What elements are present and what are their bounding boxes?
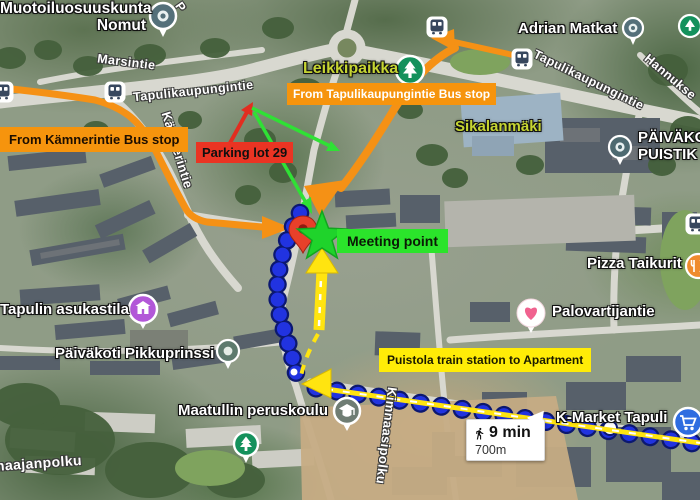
place-pin-icon [623,18,643,45]
label-adrian-matkat: Adrian Matkat [518,21,617,38]
walk-info-bubble: 9 min 700m [466,419,545,461]
label-palovartijantie: Palovartijantie [552,304,655,321]
place-pin-icon [217,340,239,369]
restaurant-icon [686,254,700,278]
label-pizza-taikurit: Pizza Taikurit [587,256,682,273]
bus-stop-icon [427,17,448,38]
map-canvas: Muotoiluosuuskunta Nomut P Marsintie Tap… [0,0,700,500]
tree-park-icon [396,56,424,84]
heart-favorite-icon [517,299,545,333]
label-line: Nomut [0,17,146,34]
walking-person-icon [473,425,486,442]
tree-park-icon [234,432,258,463]
callout-meeting-point: Meeting point [337,229,448,253]
label-k-market-tapuli: K-Market Tapuli [556,410,667,427]
callout-walk-route: Puistola train station to Apartment [379,348,591,372]
label-leikkipaikka: Leikkipaikka [303,60,398,78]
community-center-icon [129,295,157,329]
bus-stop-icon [105,82,126,103]
walk-distance: 700m [475,443,538,457]
label-sikalanmaki: Sikalanmäki [455,119,542,136]
place-pin-icon [609,136,631,165]
label-line: Muotoiluosuuskunta [0,0,146,17]
callout-from-kamnerintie-bus-stop: From Kämnerintie Bus stop [0,127,188,152]
bus-stop-icon [512,49,533,70]
school-pin-icon [334,398,360,431]
bus-stop-icon [0,82,14,103]
tree-park-icon [679,15,700,37]
callout-from-tapulikaupungintie-bus-stop: From Tapulikaupungintie Bus stop [287,83,496,105]
label-paivakoti-puistikko: PÄIVÄKO PUISTIK [638,130,700,163]
callout-parking-lot-29: Parking lot 29 [196,142,293,163]
label-tapulin-asukastila: Tapulin asukastila [0,302,129,319]
walk-duration: 9 min [489,424,531,442]
label-muotoiluosuuskunta: Muotoiluosuuskunta Nomut [0,0,146,34]
label-maatullin-peruskoulu: Maatullin peruskoulu [178,403,328,420]
bus-stop-icon [686,214,700,235]
label-paivakoti-pikkuprinssi: Päiväkoti Pikkuprinssi [55,346,214,363]
shopping-cart-icon [674,408,700,436]
label-line: PÄIVÄKO [638,130,700,147]
label-line: PUISTIK [638,147,700,164]
